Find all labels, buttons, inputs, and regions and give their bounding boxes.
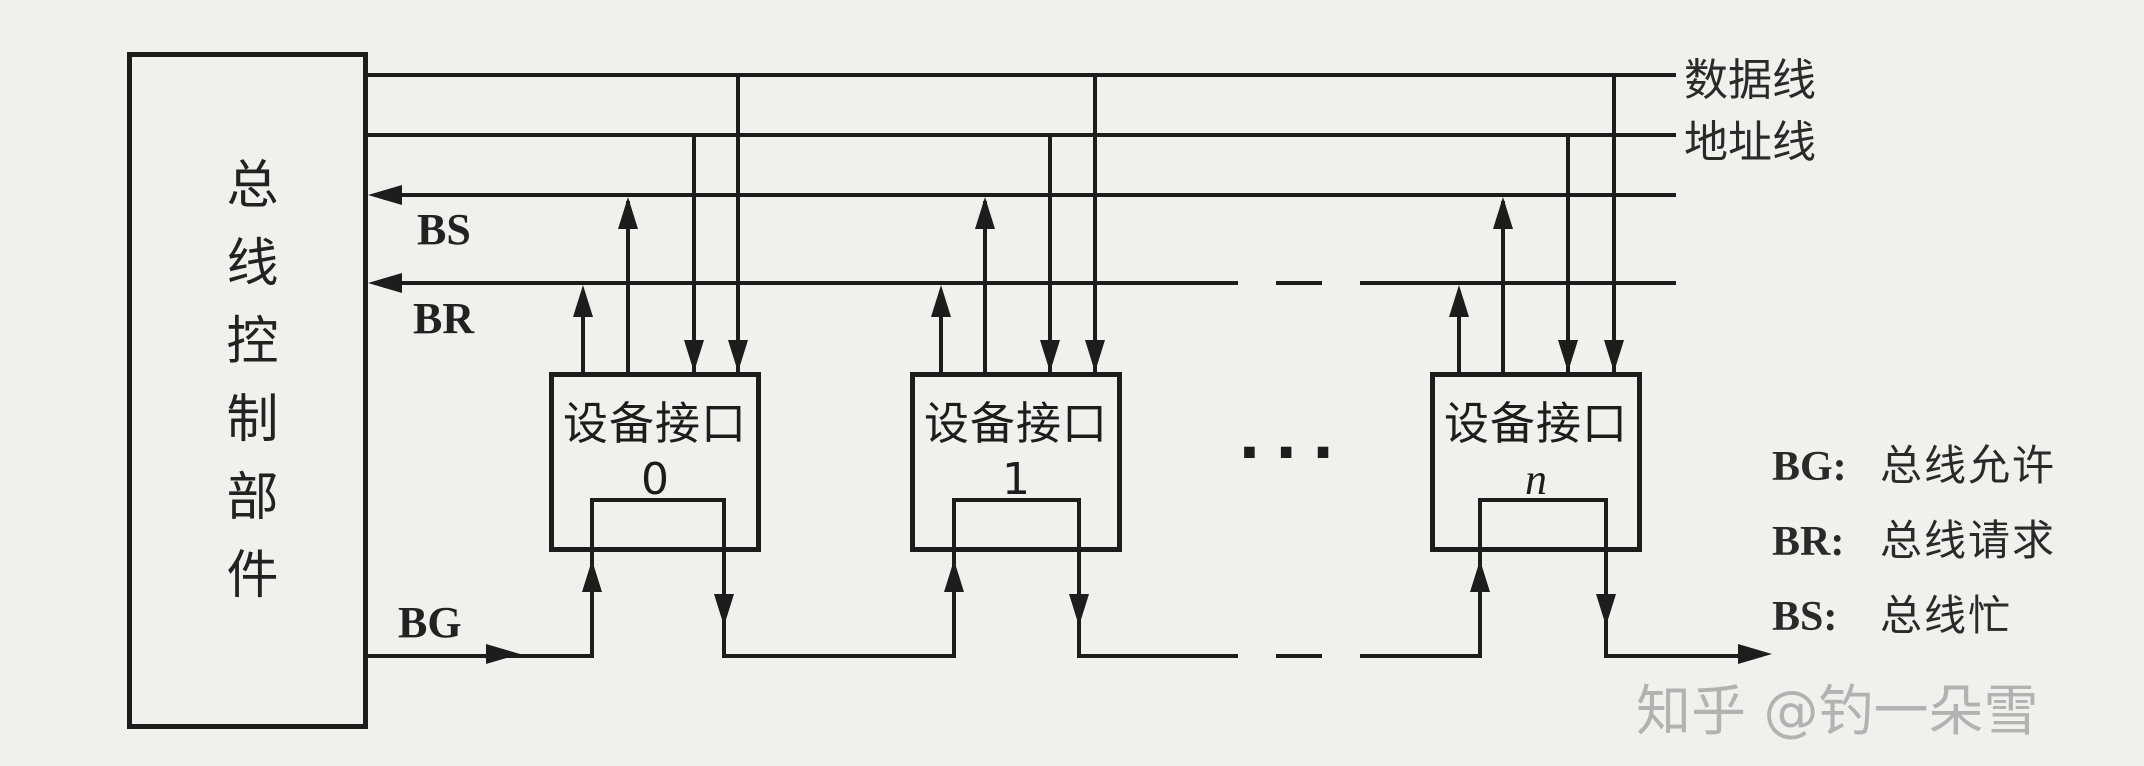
data-line-label: 数据线 <box>1684 44 1816 108</box>
legend-row-bs: BS: 总线忙 <box>1772 582 2056 643</box>
br-bus-line-right-segment <box>1398 281 1676 285</box>
br-label: BR <box>413 293 474 344</box>
bs-arrowhead-into-controller <box>368 185 402 205</box>
device1-br-arrowhead <box>931 285 951 317</box>
device1-data-arrowhead <box>1085 340 1105 372</box>
device0-grant-in-arrowhead <box>582 560 602 592</box>
legend-abbr-bg: BG: <box>1772 443 1880 491</box>
device0-notch-top <box>590 498 726 502</box>
br-arrowhead-into-controller <box>368 273 402 293</box>
device1-grant-out-arrowhead <box>1069 594 1089 626</box>
legend-meaning-bs: 总线忙 <box>1880 582 2012 643</box>
bs-label: BS <box>417 204 471 255</box>
legend-row-bg: BG: 总线允许 <box>1772 432 2056 493</box>
bs-bus-line <box>398 193 1676 197</box>
device0-bs-arrowhead <box>618 197 638 229</box>
device1-data-drop-line <box>1093 77 1097 372</box>
legend-meaning-br: 总线请求 <box>1880 507 2056 568</box>
device0-data-arrowhead <box>728 340 748 372</box>
device-interface-box-n: 设备接口 n <box>1430 372 1642 552</box>
device-interface-label: 设备接口 <box>924 387 1108 452</box>
device-interface-label: 设备接口 <box>563 387 747 452</box>
device-ellipsis: ··· <box>1238 418 1348 488</box>
device1-notch-top <box>952 498 1081 502</box>
bg-chain-output-segment <box>1604 654 1742 658</box>
legend-abbr-br: BR: <box>1772 518 1880 566</box>
device1-grant-in-arrowhead <box>944 560 964 592</box>
device0-address-arrowhead <box>684 340 704 372</box>
bus-control-unit-box: 总线控制部件 <box>127 52 368 729</box>
bg-chain-final-arrowhead <box>1738 644 1772 664</box>
device0-data-drop-line <box>736 77 740 372</box>
address-line-label: 地址线 <box>1684 106 1816 170</box>
address-bus-line <box>368 133 1676 137</box>
device0-grant-out-line <box>722 498 726 658</box>
device-interface-box-0: 设备接口 0 <box>549 372 761 552</box>
device0-address-drop-line <box>692 137 696 372</box>
devicen-grant-out-line <box>1604 498 1608 658</box>
legend-meaning-bg: 总线允许 <box>1880 432 2056 493</box>
device1-address-arrowhead <box>1040 340 1060 372</box>
bg-chain-device0-to-device1 <box>722 654 956 658</box>
bg-chain-controller-to-device0 <box>368 654 594 658</box>
device0-grant-out-arrowhead <box>714 594 734 626</box>
devicen-grant-out-arrowhead <box>1596 594 1616 626</box>
bg-chain-dashed-segment <box>1192 654 1398 658</box>
zhihu-watermark: 知乎 @钓一朵雪 <box>1636 666 2038 746</box>
bg-label: BG <box>398 597 462 648</box>
device-interface-box-1: 设备接口 1 <box>910 372 1122 552</box>
bg-chain-to-devicen-segment <box>1398 654 1482 658</box>
device-interface-label: 设备接口 <box>1444 387 1628 452</box>
daisy-chain-bus-arbitration-diagram: 总线控制部件 设备接口 0 设备接口 1 设备接口 n <box>0 0 2144 766</box>
device1-grant-out-line <box>1077 498 1081 658</box>
device1-address-drop-line <box>1048 137 1052 372</box>
bus-control-unit-label: 总线控制部件 <box>210 157 285 625</box>
bg-chain-arrowhead-1 <box>486 644 520 664</box>
data-bus-line <box>368 73 1676 77</box>
devicen-data-arrowhead <box>1604 340 1624 372</box>
device1-bs-arrowhead <box>975 197 995 229</box>
devicen-bs-arrowhead <box>1493 197 1513 229</box>
br-bus-line-left-segment <box>398 281 1192 285</box>
bg-chain-device1-right-segment <box>1077 654 1192 658</box>
devicen-br-arrowhead <box>1449 285 1469 317</box>
devicen-address-drop-line <box>1566 137 1570 372</box>
legend-row-br: BR: 总线请求 <box>1772 507 2056 568</box>
devicen-notch-top <box>1478 498 1608 502</box>
devicen-address-arrowhead <box>1558 340 1578 372</box>
devicen-data-drop-line <box>1612 77 1616 372</box>
device0-br-arrowhead <box>573 285 593 317</box>
devicen-grant-in-arrowhead <box>1470 560 1490 592</box>
br-bus-line-dashed-segment <box>1192 281 1398 285</box>
legend: BG: 总线允许 BR: 总线请求 BS: 总线忙 <box>1772 432 2056 643</box>
legend-abbr-bs: BS: <box>1772 593 1880 641</box>
